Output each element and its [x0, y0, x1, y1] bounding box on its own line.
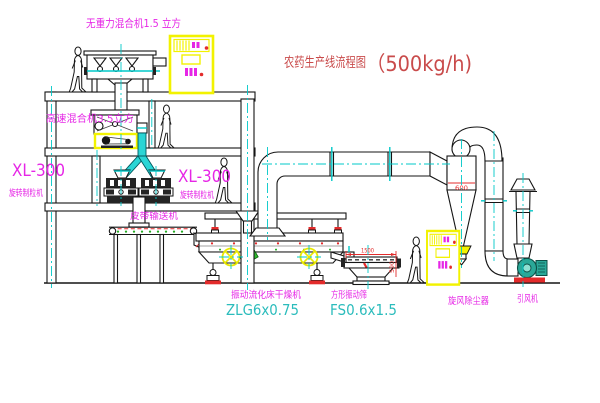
control-cabinet-top — [170, 36, 213, 93]
label-granulator-left-name: 旋转制粒机 — [9, 187, 43, 199]
mixer-motor — [153, 58, 166, 66]
mixer-drive-box — [95, 134, 137, 148]
dim-sieve-length: 1500 — [361, 248, 374, 255]
label-granulator-right-name: 旋转制粒机 — [180, 189, 214, 201]
control-cabinet-right — [427, 231, 459, 285]
dim-cyclone-diameter: 600 — [455, 186, 468, 192]
belt-tail-pulley — [109, 228, 115, 234]
person-ground — [407, 237, 424, 283]
label-fan: 引风机 — [517, 293, 538, 305]
exhaust-duct — [250, 147, 447, 236]
induced-draft-fan — [514, 259, 547, 283]
cyclone-inlet-taper — [430, 152, 447, 185]
label-dryer-model: ZLG6x0.75 — [226, 301, 299, 319]
label-no-gravity-mixer: 无重力混合机1.5 立方 — [86, 16, 181, 30]
diagram-title-capacity: （500kg/h) — [366, 52, 472, 76]
person-level2 — [158, 105, 174, 148]
floor-slab-mid — [45, 148, 255, 156]
floor-slab-top — [45, 92, 255, 101]
label-granulator-right-model: XL-300 — [178, 167, 231, 186]
dim-sieve-height: 590 — [389, 261, 396, 273]
interior-column-level1 — [92, 156, 100, 203]
cyclone-vortex-elbow — [452, 140, 470, 158]
person-roof — [69, 47, 85, 92]
label-sieve-model: FS0.6x1.5 — [330, 301, 397, 319]
process-flow-diagram: 无重力混合机1.5 立方 农药生产线流程图 （500kg/h) 高速混合机3.5… — [0, 0, 600, 403]
fan-base — [514, 278, 545, 283]
label-cyclone: 旋风除尘器 — [448, 295, 489, 307]
belt-rollers-small — [117, 231, 183, 233]
diagram-title: 农药生产线流程图 — [284, 55, 366, 71]
mixer-paddles — [94, 58, 138, 72]
floor-slab-low — [45, 203, 255, 211]
label-dryer-name: 振动流化床干燥机 — [231, 289, 301, 301]
label-sieve-name: 方形振动筛 — [331, 289, 367, 301]
label-belt-conveyor: 皮带输送机 — [130, 210, 178, 222]
label-granulator-left-model: XL-300 — [12, 161, 65, 180]
label-high-speed-mixer: 高速混合机3.5立方 — [46, 112, 134, 125]
belt-conveyor — [109, 227, 197, 283]
